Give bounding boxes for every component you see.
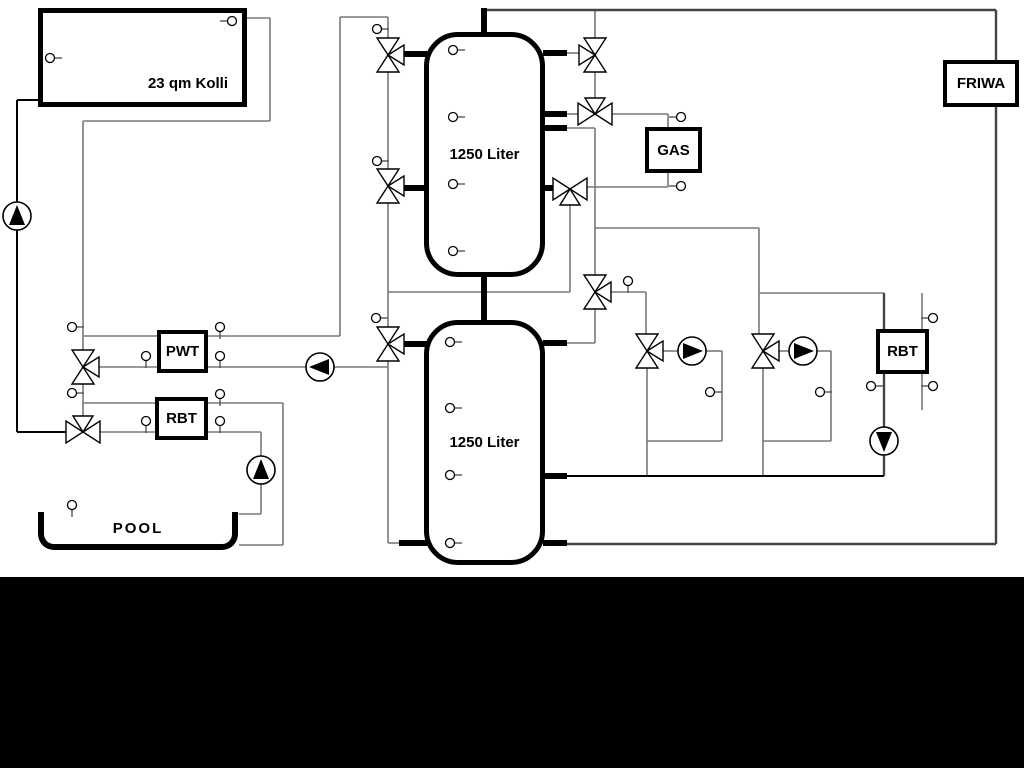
solar-collector-box: 23 qm Kolli	[38, 8, 247, 107]
three-way-valve-icon	[752, 334, 779, 368]
temperature-sensor-icon	[142, 417, 151, 434]
bottom-black-bar	[0, 577, 1024, 768]
buffer-tank-bottom-label: 1250 Liter	[449, 434, 519, 451]
buffer-tank-top: 1250 Liter	[424, 32, 545, 277]
pwt-heat-exchanger-box: PWT	[157, 330, 208, 373]
temperature-sensor-icon	[372, 314, 389, 323]
temperature-sensor-icon	[373, 25, 390, 34]
temperature-sensor-icon	[373, 157, 390, 166]
temperature-sensor-icon	[867, 382, 884, 391]
pool-label: POOL	[113, 520, 164, 537]
rbt-left-label: RBT	[166, 410, 197, 427]
temperature-sensor-icon	[216, 390, 225, 407]
pump-icon	[306, 353, 334, 381]
rbt-right-heat-exchanger-box: RBT	[876, 329, 929, 374]
friwa-fresh-water-box: FRIWA	[943, 60, 1019, 107]
three-way-valve-icon	[579, 38, 606, 72]
three-way-valve-icon	[636, 334, 663, 368]
temperature-sensor-icon	[706, 388, 723, 397]
three-way-valve-icon	[377, 38, 404, 72]
temperature-sensor-icon	[216, 323, 225, 340]
rbt-right-label: RBT	[887, 343, 918, 360]
pump-icon	[3, 202, 31, 230]
three-way-valve-icon	[578, 98, 612, 125]
three-way-valve-icon	[377, 327, 404, 361]
temperature-sensor-icon	[68, 389, 85, 398]
three-way-valve-icon	[553, 178, 587, 205]
temperature-sensor-icon	[921, 382, 938, 391]
three-way-valve-icon	[72, 350, 99, 384]
pump-icon	[247, 456, 275, 484]
temperature-sensor-icon	[624, 277, 633, 294]
pump-icon	[789, 337, 817, 365]
friwa-label: FRIWA	[957, 75, 1005, 92]
hydraulic-schematic-canvas: 23 qm Kolli 1250 Liter 1250 Liter PWT RB…	[0, 0, 1024, 768]
temperature-sensor-icon	[816, 388, 833, 397]
three-way-valve-icon	[584, 275, 611, 309]
gas-label: GAS	[657, 142, 690, 159]
temperature-sensor-icon	[142, 352, 151, 369]
pwt-label: PWT	[166, 343, 199, 360]
pump-icon	[870, 427, 898, 455]
temperature-sensor-icon	[68, 323, 85, 332]
temperature-sensor-icon	[216, 352, 225, 369]
temperature-sensor-icon	[216, 417, 225, 434]
buffer-tank-top-label: 1250 Liter	[449, 146, 519, 163]
temperature-sensor-icon	[921, 314, 938, 323]
solar-collector-label: 23 qm Kolli	[148, 75, 228, 92]
rbt-pool-heat-exchanger-box: RBT	[155, 397, 208, 440]
pool-vessel: POOL	[38, 512, 238, 550]
buffer-tank-bottom: 1250 Liter	[424, 320, 545, 565]
pump-icon	[678, 337, 706, 365]
gas-boiler-box: GAS	[645, 127, 702, 173]
three-way-valve-icon	[66, 416, 100, 443]
temperature-sensor-icon	[669, 113, 686, 122]
temperature-sensor-icon	[669, 182, 686, 191]
three-way-valve-icon	[377, 169, 404, 203]
